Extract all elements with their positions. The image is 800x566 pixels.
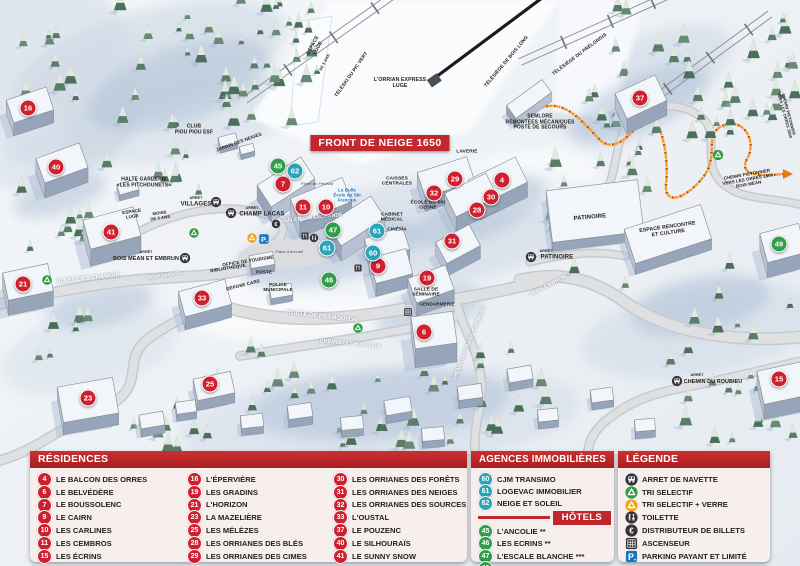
front-de-neige-banner: FRONT DE NEIGE 1650: [310, 135, 449, 151]
legend-item-41: 41LE SUNNY SNOW: [333, 550, 464, 563]
resort-map: P€ESPACE LUGE+ DE 5 ANSTÉLÉSKI DU PIC VE…: [0, 0, 800, 566]
legend-item-euro: €DISTRIBUTEUR DE BILLETS: [625, 524, 767, 537]
legend-item-label: LES MÉLÈZES: [206, 526, 259, 535]
legend-item-label: LES ECRINS **: [497, 539, 551, 548]
marker-badge: 41: [333, 549, 348, 564]
legend-item-label: LES ÉCRINS: [56, 552, 102, 561]
legend-item-47: 47L'ESCALE BLANCHE ***: [478, 550, 611, 562]
residences-header: RÉSIDENCES: [30, 451, 467, 468]
legend-item-label: LA MAZELIÈRE: [206, 513, 262, 522]
legend-item-label: NEIGE ET SOLEIL: [497, 499, 562, 508]
legend-item-label: LE POUZENC: [352, 526, 401, 535]
legend-item-16: 16L'ÉPERVIÈRE: [187, 473, 333, 486]
legend-item-label: DISTRIBUTEUR DE BILLETS: [642, 526, 745, 535]
legend-item-6: 6LE BELVÉDÈRE: [37, 486, 187, 499]
legend-item-label: LES CEMBROS: [56, 539, 112, 548]
legend-item-recycle-yellow: TRI SELECTIF + VERRE: [625, 499, 767, 512]
legend-item-label: ASCENSEUR: [642, 539, 690, 548]
residences-column: 16L'ÉPERVIÈRE19LES GRADINS21L'HORIZON23L…: [187, 473, 333, 563]
legend-item-label: TRI SELECTIF: [642, 488, 693, 497]
toilet-icon: [625, 511, 638, 524]
legend-item-label: L'ÉPERVIÈRE: [206, 475, 256, 484]
legend-item-label: CJM TRANSIMO: [497, 475, 556, 484]
parking-icon: P: [625, 550, 638, 563]
legend-item-9: 9LE CAIRN: [37, 511, 187, 524]
legend-item-45: 45L'ANCOLIE **: [478, 525, 611, 537]
hotels-divider: [478, 516, 550, 519]
legend-item-29: 29LES ORRIANES DES CIMES: [187, 550, 333, 563]
legend-item-31: 31LES ORRIANES DES NEIGES: [333, 486, 464, 499]
legend-item-label: LES ORRIANES DES NEIGES: [352, 488, 458, 497]
legend-item-label: ARRET DE NAVETTE: [642, 475, 718, 484]
legend-item-25: 25LES MÉLÈZES: [187, 524, 333, 537]
legend-item-11: 11LES CEMBROS: [37, 537, 187, 550]
legend-item-label: LE SUNNY SNOW: [352, 552, 416, 561]
legende-header: LÉGENDE: [618, 451, 770, 468]
legend-item-7: 7LE BOUSSOLENC: [37, 499, 187, 512]
legend-item-label: LES CARLINES: [56, 526, 112, 535]
legend-item-21: 21L'HORIZON: [187, 499, 333, 512]
legend-item-30: 30LES ORRIANES DES FORÊTS: [333, 473, 464, 486]
legend-item-19: 19LES GRADINS: [187, 486, 333, 499]
legend-item-60: 60CJM TRANSIMO: [478, 473, 611, 485]
residences-list: 4LE BALCON DES ORRES6LE BELVÉDÈRE7LE BOU…: [30, 468, 467, 563]
legend-item-label: TOILETTE: [642, 513, 679, 522]
hotels-header-row: HÔTELS: [478, 511, 611, 524]
recycle-yellow-icon: [625, 499, 638, 512]
legend-item-40: 40LE SILHOURAÏS: [333, 537, 464, 550]
legend-item-recycle-green: TRI SELECTIF: [625, 486, 767, 499]
legend-item-toilet: TOILETTE: [625, 511, 767, 524]
residences-column: 4LE BALCON DES ORRES6LE BELVÉDÈRE7LE BOU…: [37, 473, 187, 563]
legend-item-37: 37LE POUZENC: [333, 524, 464, 537]
marker-badge: 29: [187, 549, 202, 564]
legend-panel-agences-hotels: AGENCES IMMOBILIÈRES 60CJM TRANSIMO61LOG…: [471, 451, 614, 562]
legend-item-label: LE BELVÉDÈRE: [56, 488, 114, 497]
legend-item-4: 4LE BALCON DES ORRES: [37, 473, 187, 486]
legend-item-label: L'HORIZON: [206, 500, 247, 509]
legend-item-label: LES ORRIANES DES CIMES: [206, 552, 307, 561]
marker-badge: 62: [478, 496, 493, 511]
legend-item-bus: ARRET DE NAVETTE: [625, 473, 767, 486]
legend-item-label: L'ESCALE BLANCHE ***: [497, 552, 584, 561]
legend-item-15: 15LES ÉCRINS: [37, 550, 187, 563]
legend-item-parking: PPARKING PAYANT ET LIMITÉ: [625, 550, 767, 563]
svg-text:€: €: [629, 526, 634, 535]
legend-item-label: LES ORRIANES DES SOURCES: [352, 500, 466, 509]
legend-item-label: LES ORRIANES DES BLÉS: [206, 539, 303, 548]
elevator-icon: [625, 537, 638, 550]
legend-panel-legende: LÉGENDE ARRET DE NAVETTETRI SELECTIFTRI …: [618, 451, 770, 562]
residences-column: 30LES ORRIANES DES FORÊTS31LES ORRIANES …: [333, 473, 464, 563]
legend-item-label: LE CAIRN: [56, 513, 92, 522]
legend-panel-residences: RÉSIDENCES 4LE BALCON DES ORRES6LE BELVÉ…: [30, 451, 467, 562]
legend-item-label: LE BALCON DES ORRES: [56, 475, 147, 484]
legend-item-label: LES ORRIANES DES FORÊTS: [352, 475, 460, 484]
legend-item-49: 49LES TRAPPEURS **: [478, 562, 611, 566]
agences-hotels-list: 60CJM TRANSIMO61LOGEVAC IMMOBILIER62NEIG…: [471, 468, 614, 566]
legend-item-label: TRI SELECTIF + VERRE: [642, 500, 728, 509]
bus-icon: [625, 473, 638, 486]
euro-icon: €: [625, 524, 638, 537]
legend-item-label: LE BOUSSOLENC: [56, 500, 121, 509]
legend-item-label: L'ANCOLIE **: [497, 527, 546, 536]
legende-list: ARRET DE NAVETTETRI SELECTIFTRI SELECTIF…: [618, 468, 770, 563]
legend-item-46: 46LES ECRINS **: [478, 538, 611, 550]
hotels-header: HÔTELS: [553, 511, 611, 525]
legend-item-10: 10LES CARLINES: [37, 524, 187, 537]
legend-item-label: LE SILHOURAÏS: [352, 539, 411, 548]
legend-item-23: 23LA MAZELIÈRE: [187, 511, 333, 524]
legend-item-label: LES GRADINS: [206, 488, 258, 497]
legend-item-32: 32LES ORRIANES DES SOURCES: [333, 499, 464, 512]
legend-item-label: LOGEVAC IMMOBILIER: [497, 487, 582, 496]
legend-item-62: 62NEIGE ET SOLEIL: [478, 498, 611, 510]
svg-text:P: P: [628, 552, 634, 562]
legend-item-33: 33L'OUSTAL: [333, 511, 464, 524]
legend-item-28: 28LES ORRIANES DES BLÉS: [187, 537, 333, 550]
legend-item-61: 61LOGEVAC IMMOBILIER: [478, 485, 611, 497]
recycle-green-icon: [625, 486, 638, 499]
agences-header: AGENCES IMMOBILIÈRES: [471, 451, 614, 468]
legend-item-elevator: ASCENSEUR: [625, 537, 767, 550]
legend-item-label: PARKING PAYANT ET LIMITÉ: [642, 552, 747, 561]
marker-badge: 15: [37, 549, 52, 564]
legend-item-label: L'OUSTAL: [352, 513, 389, 522]
